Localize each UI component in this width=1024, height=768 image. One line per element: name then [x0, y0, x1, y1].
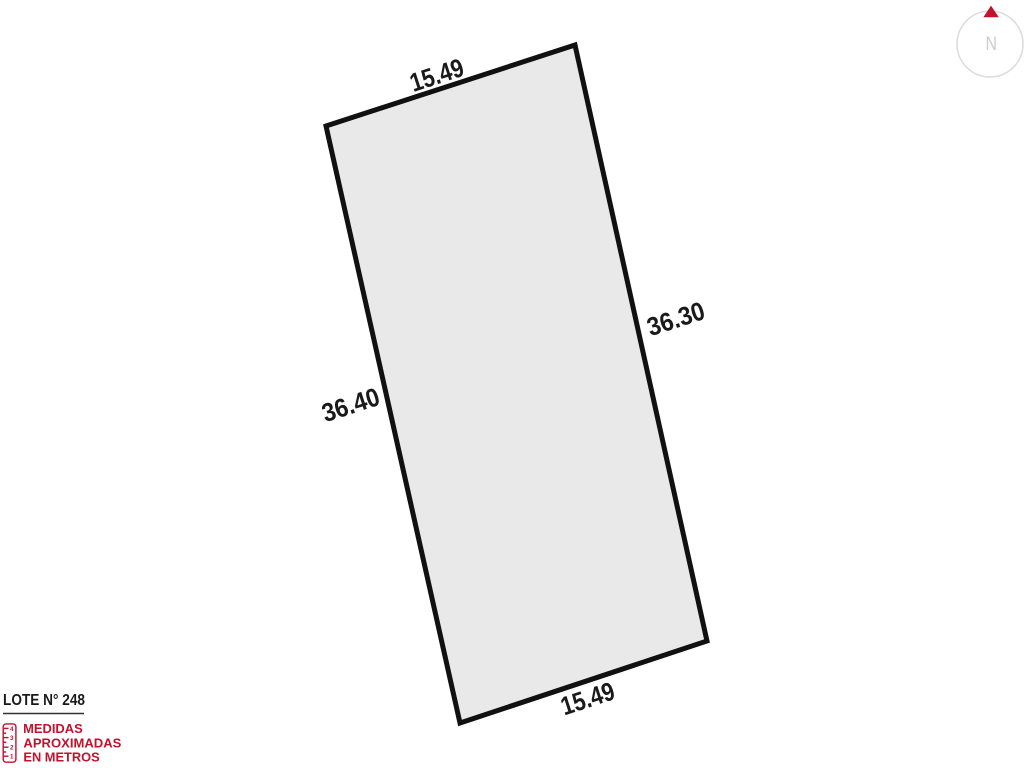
svg-text:36.30: 36.30 — [643, 295, 708, 342]
svg-text:3: 3 — [10, 735, 14, 742]
svg-text:MEDIDAS: MEDIDAS — [23, 722, 83, 736]
svg-text:36.40: 36.40 — [318, 381, 383, 428]
svg-text:EN METROS: EN METROS — [23, 751, 99, 765]
svg-text:APROXIMADAS: APROXIMADAS — [23, 736, 121, 750]
svg-text:2: 2 — [10, 744, 14, 751]
svg-text:1: 1 — [10, 754, 14, 761]
svg-text:LOTE N° 248: LOTE N° 248 — [3, 692, 85, 709]
svg-text:4: 4 — [10, 726, 14, 733]
svg-text:N: N — [986, 33, 998, 55]
